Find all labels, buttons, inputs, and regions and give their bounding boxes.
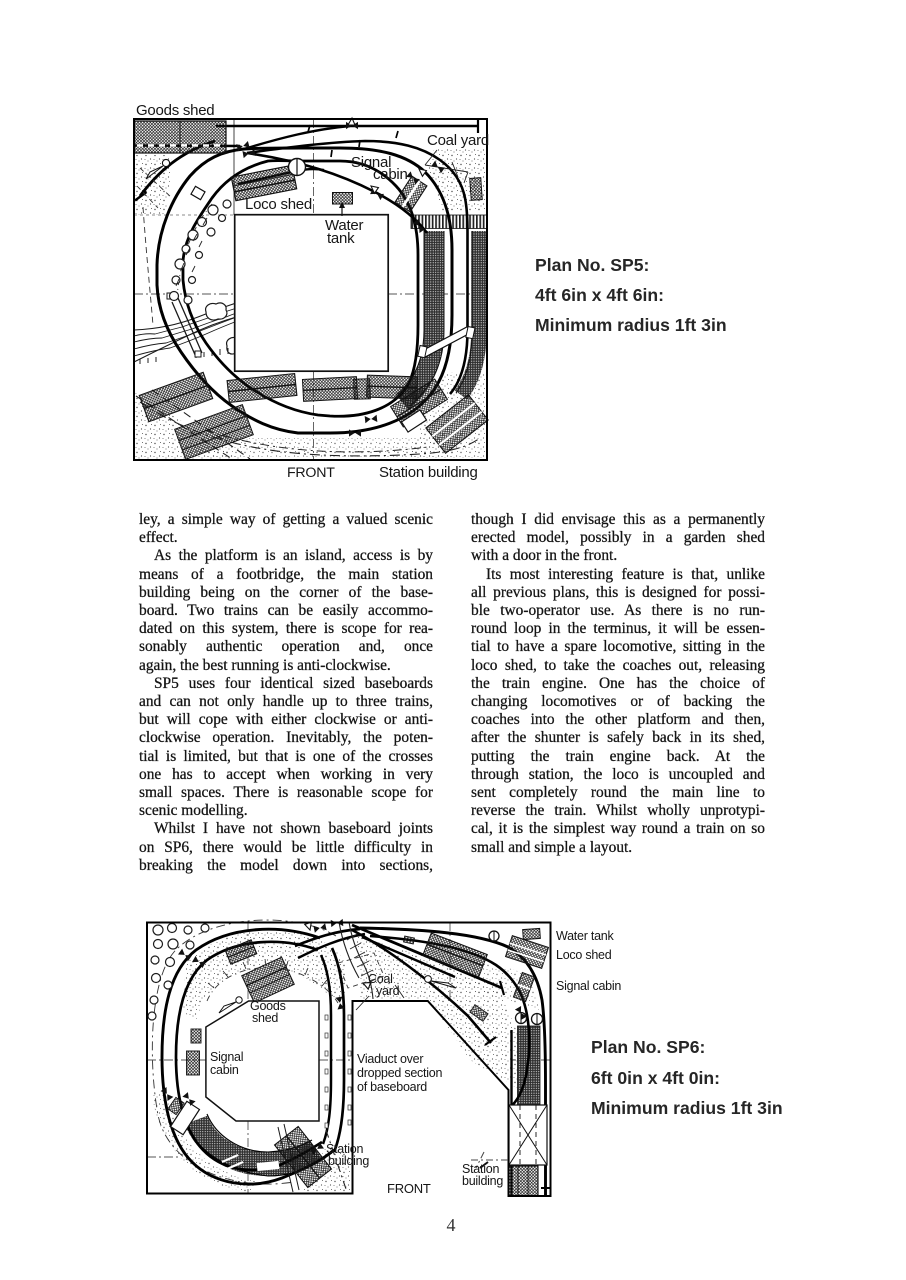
- svg-text:Signal: Signal: [210, 1050, 243, 1064]
- svg-text:cabin: cabin: [373, 166, 408, 183]
- svg-text:Coal yard: Coal yard: [427, 132, 489, 149]
- svg-text:Signal cabin: Signal cabin: [556, 979, 621, 993]
- svg-text:dropped section: dropped section: [357, 1066, 443, 1080]
- svg-text:tank: tank: [327, 230, 355, 247]
- svg-text:building: building: [462, 1174, 503, 1188]
- svg-text:Loco shed: Loco shed: [245, 196, 312, 213]
- svg-text:building: building: [328, 1154, 369, 1168]
- svg-text:FRONT: FRONT: [387, 1181, 431, 1196]
- svg-text:Station building: Station building: [379, 464, 478, 481]
- svg-text:yard: yard: [376, 984, 400, 998]
- svg-text:FRONT: FRONT: [287, 465, 335, 481]
- svg-text:Water tank: Water tank: [556, 929, 614, 943]
- svg-text:Loco shed: Loco shed: [556, 948, 612, 962]
- svg-text:of baseboard: of baseboard: [357, 1080, 427, 1094]
- svg-text:Goods shed: Goods shed: [136, 102, 214, 119]
- svg-text:Viaduct over: Viaduct over: [357, 1052, 423, 1066]
- svg-text:shed: shed: [252, 1011, 278, 1025]
- svg-text:cabin: cabin: [210, 1063, 239, 1077]
